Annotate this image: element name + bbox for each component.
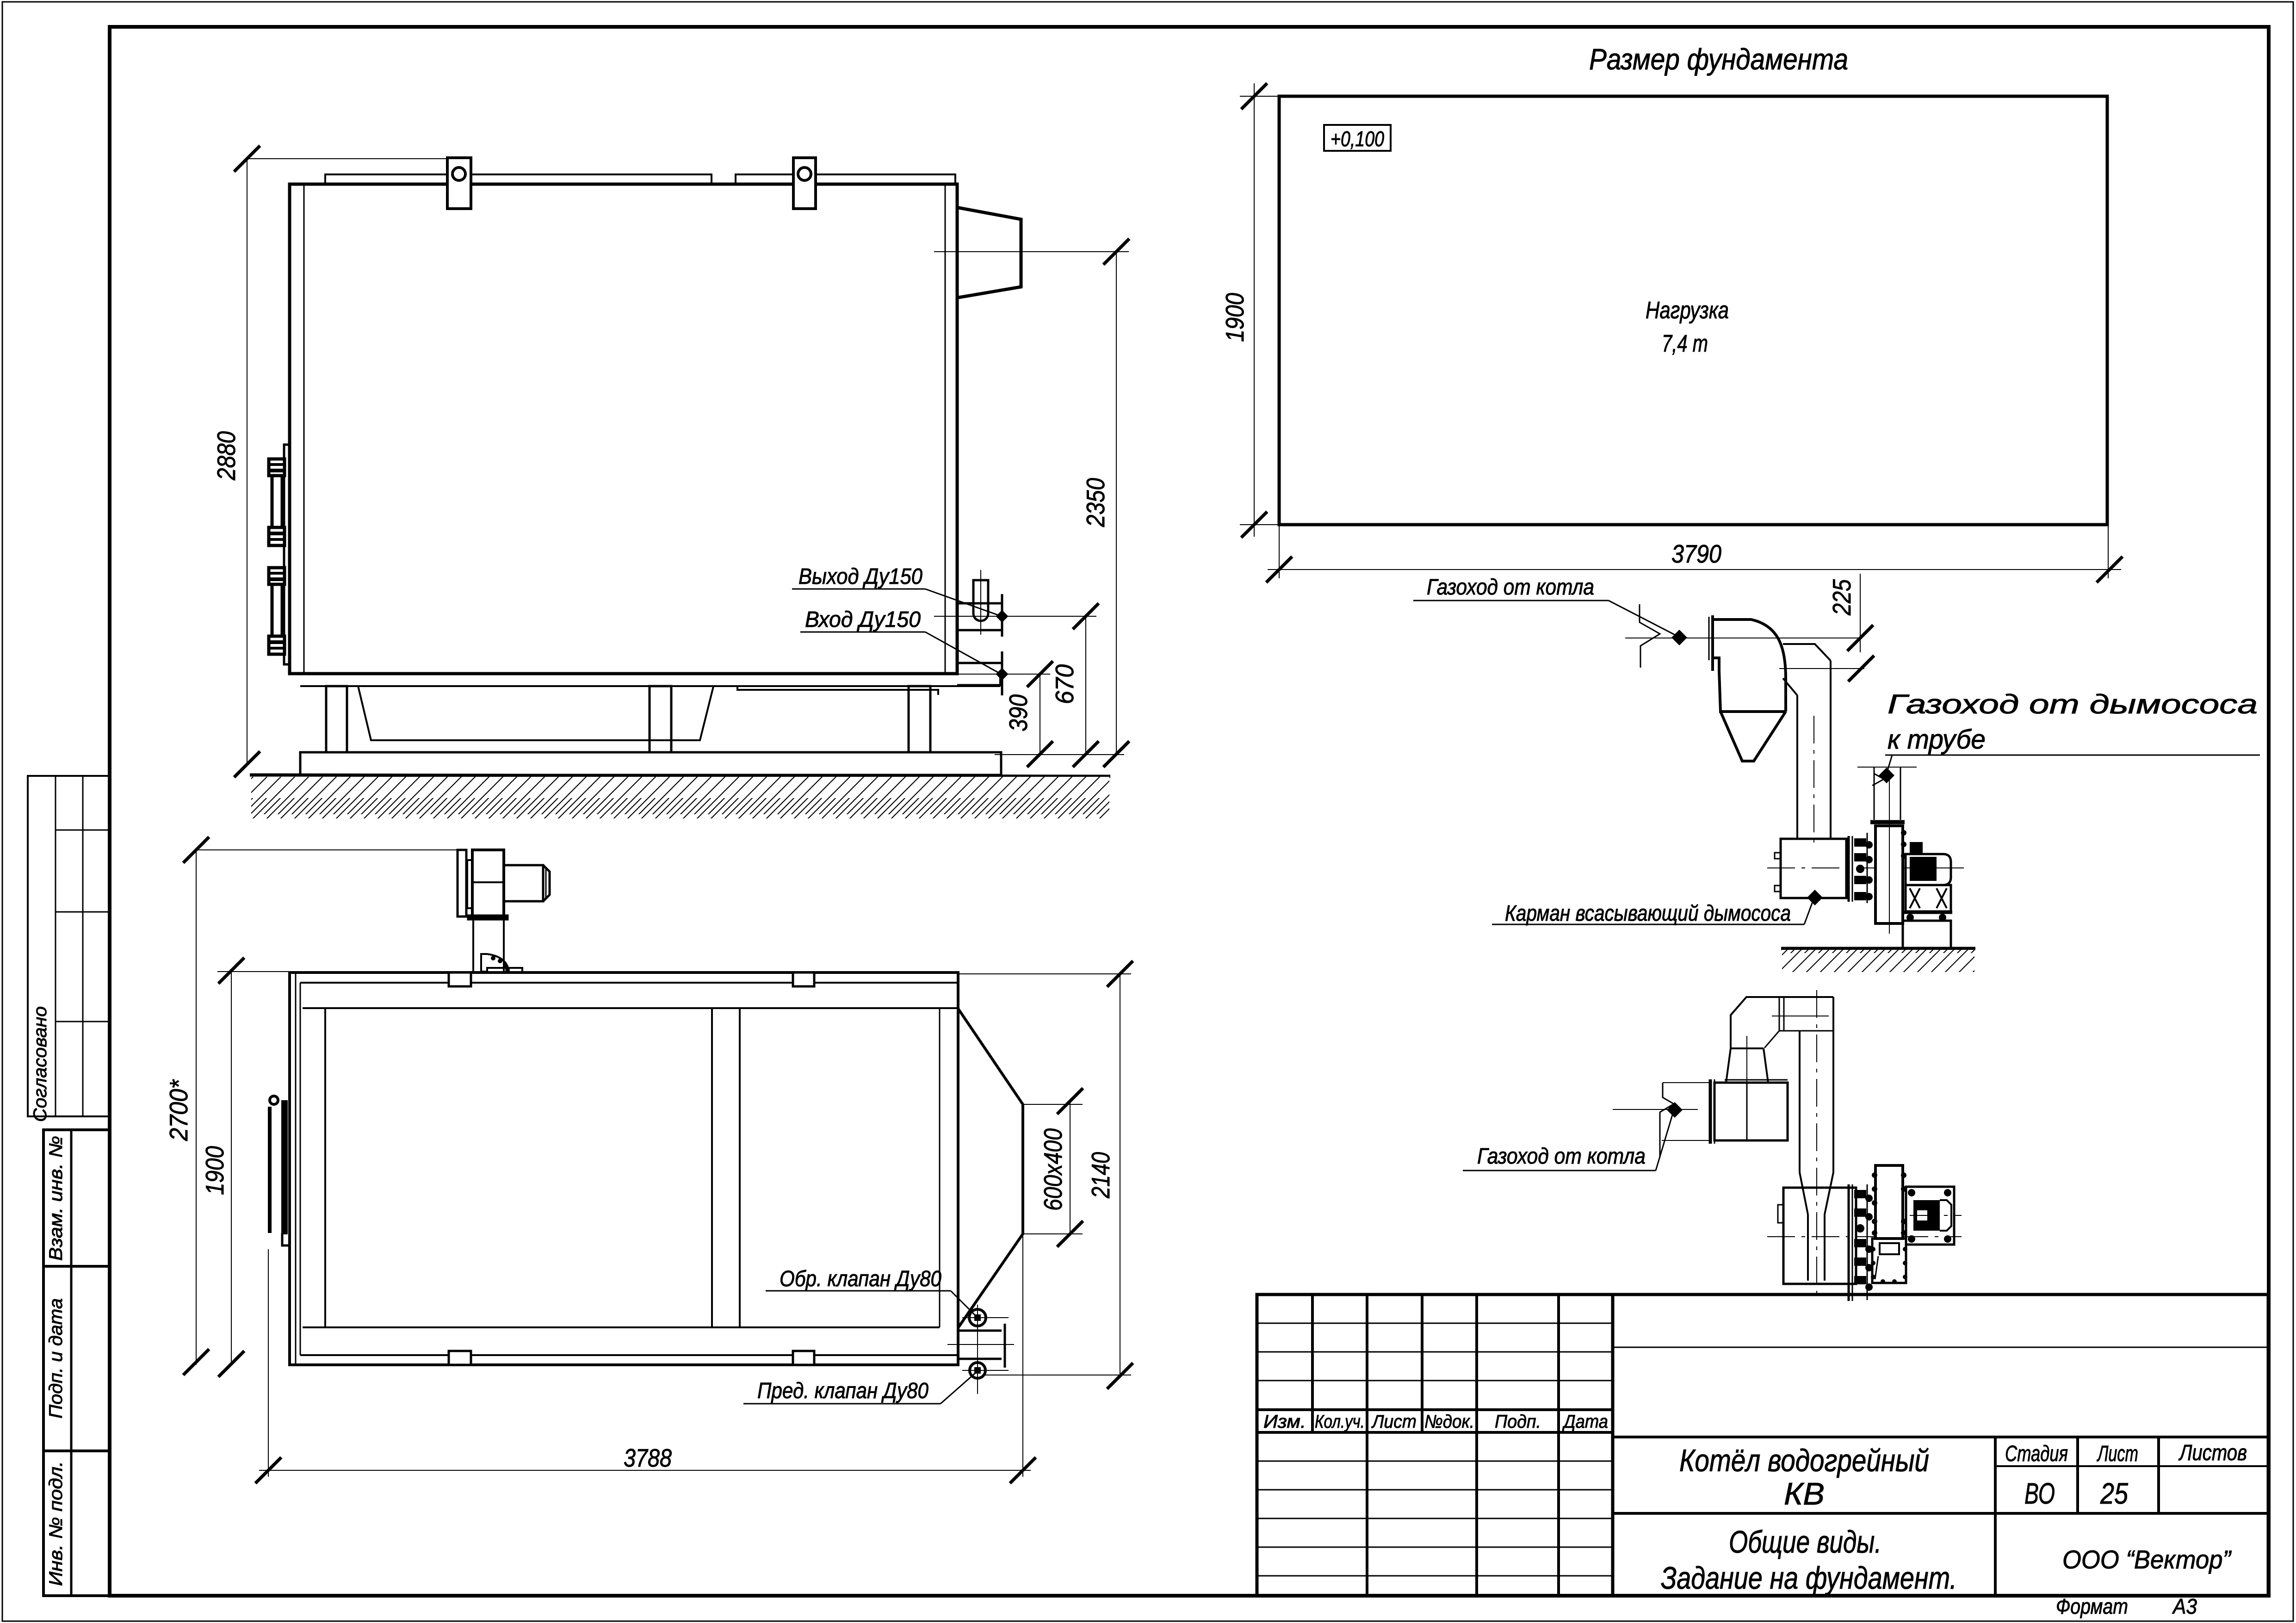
svg-text:Обр. клапан Ду80: Обр. клапан Ду80 xyxy=(780,1267,941,1291)
svg-text:Подп. и дата: Подп. и дата xyxy=(46,1298,66,1419)
svg-text:Лист: Лист xyxy=(1371,1412,1417,1432)
svg-text:Согласовано: Согласовано xyxy=(30,1006,50,1122)
svg-text:Выход Ду150: Выход Ду150 xyxy=(798,564,922,589)
svg-text:2350: 2350 xyxy=(1081,478,1110,527)
svg-text:670: 670 xyxy=(1050,664,1079,704)
svg-text:1900: 1900 xyxy=(200,1146,229,1195)
svg-text:Карман всасывающий дымососа: Карман всасывающий дымососа xyxy=(1505,901,1791,926)
svg-text:Размер фундамента: Размер фундамента xyxy=(1589,43,1848,76)
svg-text:Вход Ду150: Вход Ду150 xyxy=(805,607,921,632)
svg-text:Газоход от дымососа: Газоход от дымососа xyxy=(1888,689,2258,719)
svg-text:2880: 2880 xyxy=(212,431,241,481)
svg-text:Подп.: Подп. xyxy=(1495,1412,1541,1432)
svg-text:Изм.: Изм. xyxy=(1263,1412,1306,1432)
svg-text:№док.: №док. xyxy=(1424,1412,1474,1432)
svg-text:+0,100: +0,100 xyxy=(1331,127,1384,151)
svg-text:Нагрузка: Нагрузка xyxy=(1646,297,1729,324)
svg-text:КВ: КВ xyxy=(1784,1476,1825,1511)
svg-text:7,4 т: 7,4 т xyxy=(1662,330,1708,357)
svg-text:600х400: 600х400 xyxy=(1039,1128,1067,1211)
svg-text:Инв. № подл.: Инв. № подл. xyxy=(46,1461,66,1586)
svg-text:2700*: 2700* xyxy=(164,1079,193,1141)
svg-text:Формат: Формат xyxy=(2056,1594,2128,1618)
svg-text:Котёл водогрейный: Котёл водогрейный xyxy=(1679,1443,1929,1478)
svg-text:1900: 1900 xyxy=(1220,293,1249,342)
svg-text:390: 390 xyxy=(1004,694,1033,731)
svg-text:Взам. инв. №: Взам. инв. № xyxy=(46,1136,66,1261)
svg-text:к трубе: к трубе xyxy=(1888,725,1986,755)
svg-text:Кол.уч.: Кол.уч. xyxy=(1315,1412,1365,1432)
svg-text:Газоход от котла: Газоход от котла xyxy=(1477,1144,1646,1169)
svg-text:3790: 3790 xyxy=(1671,539,1721,568)
svg-text:Газоход от котла: Газоход от котла xyxy=(1427,575,1594,600)
svg-text:Листов: Листов xyxy=(2178,1441,2247,1465)
svg-text:Общие виды.: Общие виды. xyxy=(1729,1524,1881,1560)
svg-text:ООО “Вектор”: ООО “Вектор” xyxy=(2062,1545,2232,1574)
svg-text:ВО: ВО xyxy=(2024,1477,2055,1510)
svg-text:25: 25 xyxy=(2100,1477,2128,1510)
svg-text:2140: 2140 xyxy=(1086,1152,1115,1199)
svg-text:Лист: Лист xyxy=(2097,1442,2138,1466)
svg-text:3788: 3788 xyxy=(624,1443,672,1472)
svg-text:Стадия: Стадия xyxy=(2005,1442,2068,1466)
svg-text:Дата: Дата xyxy=(1562,1412,1608,1432)
svg-text:А3: А3 xyxy=(2172,1594,2197,1618)
svg-text:Задание на фундамент.: Задание на фундамент. xyxy=(1661,1561,1957,1596)
svg-text:Пред. клапан Ду80: Пред. клапан Ду80 xyxy=(757,1379,928,1403)
svg-text:225: 225 xyxy=(1827,579,1856,616)
